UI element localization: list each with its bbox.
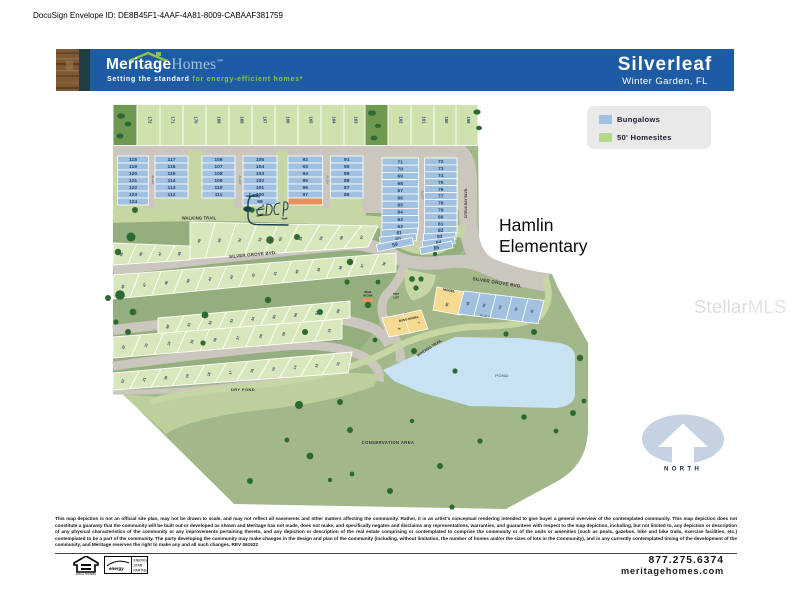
svg-text:170: 170: [194, 117, 199, 125]
svg-text:ENERGY: ENERGY: [134, 559, 149, 563]
svg-text:86: 86: [344, 192, 350, 198]
svg-text:164: 164: [332, 117, 337, 125]
svg-text:75: 75: [438, 180, 444, 186]
svg-text:72: 72: [438, 159, 444, 165]
svg-text:96: 96: [303, 185, 309, 191]
svg-text:DRY POND: DRY POND: [231, 387, 255, 392]
svg-text:STAR: STAR: [134, 564, 143, 568]
svg-text:79: 79: [438, 208, 444, 214]
svg-text:159: 159: [466, 117, 471, 125]
svg-text:91: 91: [344, 157, 350, 163]
svg-text:66: 66: [398, 195, 404, 201]
svg-text:122: 122: [129, 185, 137, 191]
svg-text:168: 168: [240, 117, 245, 125]
svg-text:105: 105: [256, 157, 264, 163]
svg-text:161: 161: [422, 117, 427, 125]
svg-text:ALLEY: ALLEY: [421, 190, 425, 199]
svg-text:ALLEY: ALLEY: [326, 175, 330, 184]
svg-text:106: 106: [214, 157, 222, 163]
svg-text:94: 94: [303, 171, 309, 177]
svg-text:90: 90: [344, 164, 350, 170]
svg-text:116: 116: [168, 164, 176, 170]
svg-text:ALLEY: ALLEY: [151, 175, 155, 184]
svg-text:117: 117: [168, 157, 176, 163]
svg-text:67: 67: [398, 188, 404, 194]
svg-text:163: 163: [354, 117, 359, 125]
svg-text:162: 162: [399, 117, 404, 125]
svg-text:114: 114: [168, 178, 176, 184]
svg-text:64: 64: [398, 210, 404, 216]
svg-text:PARTNER: PARTNER: [134, 569, 149, 573]
svg-text:73: 73: [438, 166, 444, 172]
svg-text:115: 115: [168, 171, 176, 177]
svg-text:80: 80: [438, 214, 444, 220]
svg-text:87: 87: [344, 185, 350, 191]
svg-text:103: 103: [256, 171, 264, 177]
svg-text:109: 109: [214, 178, 222, 184]
svg-text:88: 88: [344, 178, 350, 184]
svg-text:169: 169: [217, 117, 222, 125]
svg-text:124: 124: [129, 199, 137, 205]
svg-text:76: 76: [438, 187, 444, 193]
svg-text:NORTH: NORTH: [664, 466, 702, 473]
svg-text:160: 160: [444, 117, 449, 125]
svg-text:102: 102: [256, 178, 264, 184]
svg-text:95: 95: [303, 178, 309, 184]
svg-text:KIOSK: KIOSK: [363, 294, 373, 298]
svg-text:119: 119: [129, 164, 137, 170]
svg-text:ALLEY: ALLEY: [238, 175, 242, 184]
svg-text:165: 165: [309, 117, 314, 125]
svg-text:89: 89: [344, 171, 350, 177]
svg-text:107: 107: [214, 164, 222, 170]
svg-text:93: 93: [303, 164, 309, 170]
svg-text:WALKING TRAIL: WALKING TRAIL: [182, 216, 217, 221]
svg-text:171: 171: [171, 117, 176, 125]
svg-text:167: 167: [263, 117, 268, 125]
svg-text:121: 121: [129, 178, 137, 184]
svg-text:EQUAL HOUSING: EQUAL HOUSING: [76, 573, 96, 575]
svg-text:104: 104: [256, 164, 264, 170]
svg-text:77: 77: [438, 194, 444, 200]
svg-text:92: 92: [303, 157, 309, 163]
svg-text:71: 71: [398, 159, 404, 165]
svg-text:101: 101: [256, 185, 264, 191]
svg-text:65: 65: [398, 203, 404, 209]
svg-text:172: 172: [148, 117, 153, 125]
svg-text:70: 70: [398, 167, 404, 173]
svg-text:113: 113: [168, 185, 176, 191]
svg-text:78: 78: [438, 201, 444, 207]
svg-text:POND: POND: [495, 373, 509, 378]
svg-text:68: 68: [398, 181, 404, 187]
svg-text:CITRUS BAY BLVD.: CITRUS BAY BLVD.: [464, 188, 468, 218]
svg-text:110: 110: [215, 185, 223, 191]
svg-text:108: 108: [214, 171, 222, 177]
svg-text:118: 118: [129, 157, 137, 163]
svg-text:120: 120: [129, 171, 137, 177]
svg-text:energy: energy: [109, 566, 124, 571]
svg-text:123: 123: [129, 192, 137, 198]
svg-text:LOT: LOT: [393, 296, 399, 300]
svg-text:112: 112: [168, 192, 176, 198]
svg-text:69: 69: [398, 174, 404, 180]
svg-text:97: 97: [303, 192, 309, 198]
svg-text:166: 166: [286, 117, 291, 125]
svg-text:CONSERVATION AREA: CONSERVATION AREA: [362, 440, 415, 445]
svg-text:111: 111: [215, 192, 223, 198]
svg-text:74: 74: [438, 173, 444, 179]
svg-text:63: 63: [398, 217, 404, 223]
